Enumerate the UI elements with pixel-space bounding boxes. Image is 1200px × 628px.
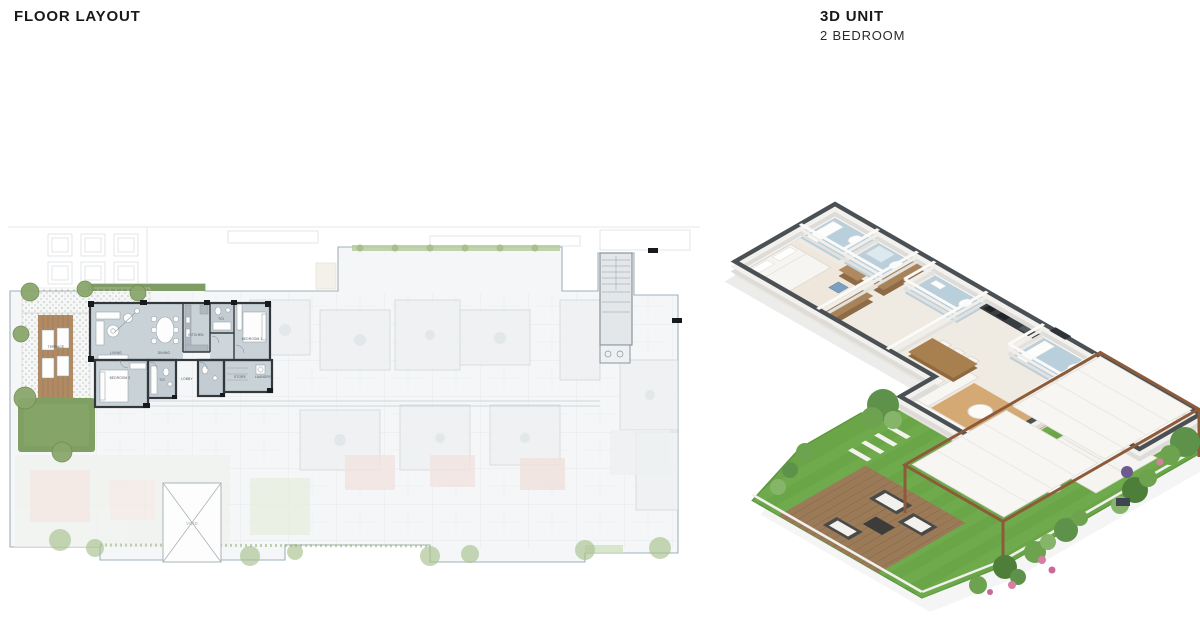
void-area: VOID — [163, 483, 221, 562]
floor-plan: VOID — [8, 227, 700, 566]
room-label-store: STORE — [234, 375, 246, 379]
room-label-bedroom-2: BEDROOM 2 — [110, 376, 131, 380]
room-label-bedroom-1: BEDROOM 1 — [242, 337, 263, 341]
room-label-lobby: LOBBY — [181, 377, 193, 381]
room-label-terrace: TERRACE — [48, 345, 65, 349]
room-label-laundry: LAUNDRY — [255, 375, 272, 379]
room-label-living: LIVING — [110, 351, 122, 355]
page: FLOOR LAYOUT 3D UNIT 2 BEDROOM — [0, 0, 1200, 628]
room-label-dining: DINING — [158, 351, 171, 355]
room-label-toi-2: TOI — [159, 378, 165, 382]
room-label-kitchen: KITCHEN — [188, 333, 204, 337]
room-label-toi-1: TOI — [218, 317, 224, 321]
void-label: VOID — [186, 521, 198, 526]
plan-and-3d-figure: VOID — [0, 0, 1200, 628]
